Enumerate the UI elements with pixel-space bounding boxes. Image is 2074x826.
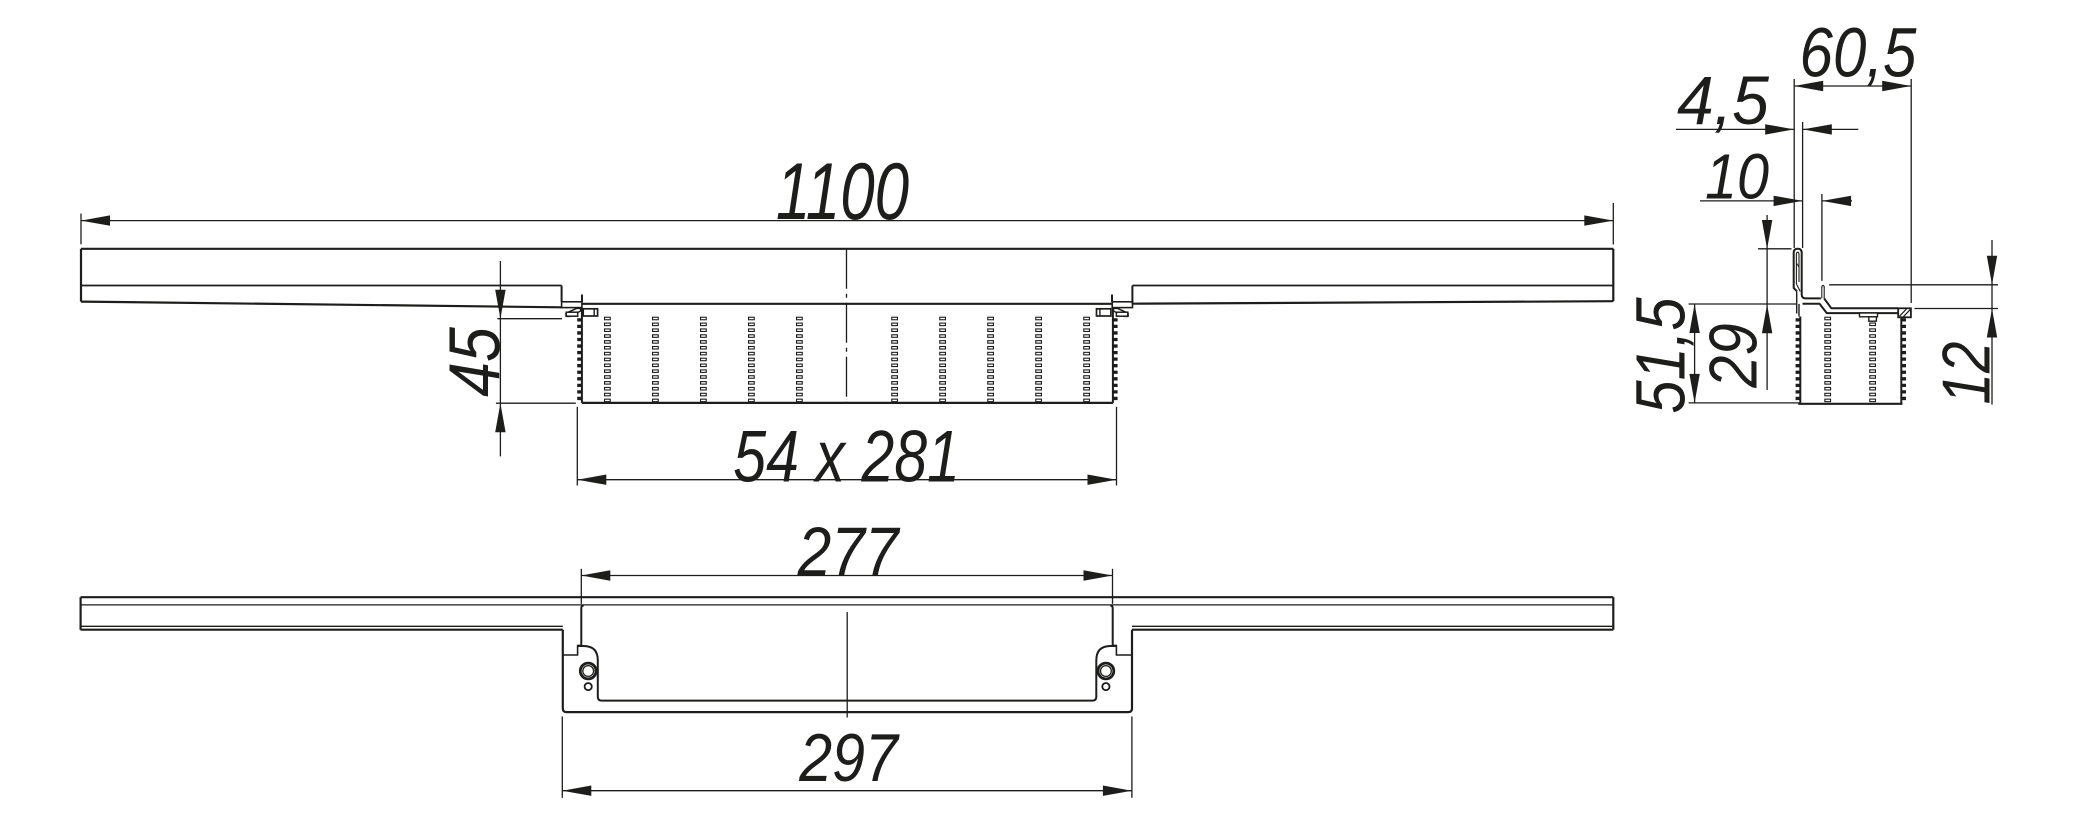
svg-text:277: 277: [797, 513, 901, 591]
svg-text:297: 297: [798, 720, 899, 796]
svg-text:10: 10: [1705, 141, 1769, 213]
svg-text:54 x 281: 54 x 281: [733, 417, 960, 498]
svg-text:29: 29: [1696, 323, 1772, 388]
svg-text:4,5: 4,5: [1677, 62, 1769, 139]
svg-text:45: 45: [435, 327, 516, 397]
svg-text:51,5: 51,5: [1622, 296, 1700, 413]
svg-text:1100: 1100: [776, 147, 909, 237]
svg-text:12: 12: [1929, 342, 2005, 405]
svg-text:60,5: 60,5: [1800, 14, 1917, 92]
